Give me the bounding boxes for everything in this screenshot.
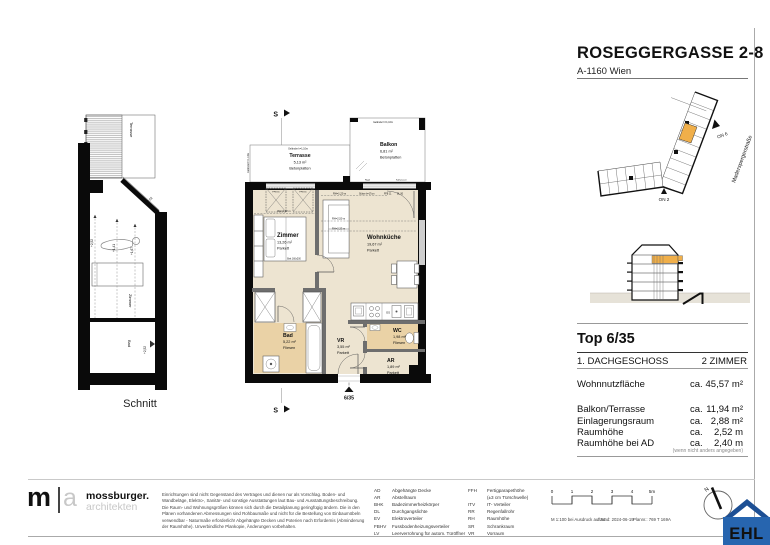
rigol-label: Rigol	[365, 180, 370, 182]
scale-tick-label: 0	[551, 489, 554, 494]
metric-label: Balkon/Terrasse	[577, 404, 645, 415]
section-roof-slope	[122, 180, 158, 213]
site-plan: ON 6 ON 2 Maderspergerstraße	[595, 88, 760, 223]
frame-bottom	[28, 536, 755, 537]
room-name: Balkon	[380, 142, 397, 148]
bed-size-label: Bett 160x200	[287, 258, 301, 261]
architect-logo-divider	[58, 487, 60, 513]
metric-value: 45,57 m²	[706, 379, 744, 390]
architect-logo-m: m	[27, 484, 51, 511]
legend-desc: IT- Verteiler	[487, 502, 511, 507]
legend-desc: (±3 cm Türschwelle)	[487, 495, 528, 500]
legend-abbr: RH	[468, 516, 475, 521]
toilet	[406, 333, 419, 344]
zimmer-wardrobe	[254, 215, 263, 277]
scale-bar: 0 1 2 3 4 5m	[548, 486, 660, 510]
metric-ca: ca.	[690, 379, 703, 390]
legend-desc: Fertigparapethöhe	[487, 488, 525, 493]
room-floor: Betonplatten	[289, 167, 310, 171]
legend-abbr: DL	[374, 509, 380, 514]
unit-floor-underline	[577, 368, 748, 369]
scale-bar-line	[552, 496, 652, 504]
column-label: Stütze b=17cm	[359, 192, 374, 195]
room-floor: Fliesen	[283, 346, 295, 350]
print-plan-number: Plannr.: 769 T 169A	[633, 517, 671, 522]
north-letter: N	[704, 486, 711, 493]
room-name: Zimmer	[277, 233, 299, 239]
railing-label-terrace-left: Geländer h=1,10m	[247, 153, 250, 173]
metric-ca: ca.	[690, 404, 703, 415]
scale-tick-label: 5m	[649, 489, 656, 494]
legend-abbr: FBHV	[374, 524, 386, 529]
section-marker-letter: S	[273, 408, 278, 415]
legend-abbr: VR	[468, 531, 474, 536]
legend-desc: Badezimmerheizkörper	[392, 502, 439, 507]
scale-tick-label: 4	[631, 489, 634, 494]
entry-threshold	[338, 374, 360, 383]
unit-floor: 1. DACHGESCHOSS	[577, 356, 668, 367]
railing-label-terrace: Geländer h=1,10m	[288, 148, 308, 151]
disclaimer-line: der Raumhöhe). Unverbindliche Plankopie,…	[162, 524, 364, 530]
legend-desc: Abstellraum	[392, 495, 416, 500]
architect-subtitle: architekten	[86, 501, 137, 513]
ffb-label: FFB 11	[384, 193, 392, 195]
floor-plan: FFB 31 FFB 31 Bett 160x200	[238, 105, 438, 415]
plan-sheet: ROSEGGERGASSE 2-8 A-1160 Wien	[0, 0, 770, 545]
room-floor: Parkett	[337, 351, 350, 355]
room-area: 19,67 m²	[367, 243, 383, 247]
ehl-logo: EHL	[723, 495, 770, 545]
disclaimer-line: Wandbeläge, Elektro-, Sanitär- und sonst…	[162, 498, 364, 504]
section-roof-slope-glass	[123, 177, 159, 210]
on6-marker-triangle	[712, 120, 720, 130]
on2-marker-triangle	[661, 188, 667, 194]
legend-abbr: BHK	[374, 502, 383, 507]
room-area: 6,81 m²	[380, 150, 394, 154]
legend-desc: Fussbodenheizungsverteiler	[392, 524, 449, 529]
ehl-roof-icon	[725, 499, 769, 517]
unit-heading: Top 6/35	[577, 331, 635, 347]
section-caption: Schnitt	[112, 398, 168, 410]
metric-label: Einlagerungsraum	[577, 416, 654, 427]
section-drawing: Terrasse +2,52 +1,41 +1,67 +2,52 +2,	[60, 108, 210, 408]
room-name: VR	[337, 338, 344, 344]
footer-separator	[28, 479, 755, 480]
page-address: A-1160 Wien	[577, 66, 631, 77]
room-area: 1,98 m²	[393, 335, 407, 339]
page-title: ROSEGGERGASSE 2-8	[577, 44, 764, 63]
legend-abbr: ITV	[468, 502, 475, 507]
unit-rooms-count: 2 ZIMMER	[702, 356, 747, 367]
legend-abbr: RR	[468, 509, 475, 514]
entry-number: 6/35	[344, 396, 354, 402]
room-area: 3,55 m²	[337, 345, 351, 349]
bathtub	[306, 323, 322, 373]
entry-marker: 6/35	[344, 383, 354, 402]
section-height-3: +1,67	[130, 247, 134, 255]
ehl-text: EHL	[729, 525, 764, 543]
disclaimer-line: Plänen vorhandenen Abmessungen sind Rohb…	[162, 511, 364, 517]
rh-zimmer-label: RH=2,02 m	[277, 209, 290, 213]
section-terrace-label: Terrasse	[129, 122, 134, 138]
rh-wk1-label: RH=1,20 m	[333, 191, 346, 195]
print-date: Stand: 2024-06-19	[598, 517, 634, 522]
on2-marker-label: ON 2	[659, 197, 670, 202]
section-marker-bottom: S	[273, 388, 290, 415]
metric-ca: ca.	[690, 416, 703, 427]
disclaimer-text: Einrichtungen sind nicht Gegenstand des …	[162, 492, 364, 530]
legend-desc: Leerverrohrung für autom. Türöffner	[392, 531, 465, 536]
skylight-label: FFB 31	[299, 192, 307, 194]
legend-abbr: SR	[468, 524, 474, 529]
architect-logo-a: a	[63, 486, 77, 511]
room-floor: Parkett	[277, 247, 290, 251]
building-section-diagram	[590, 230, 750, 320]
bed	[264, 217, 306, 261]
rh-wk3-label: RH=2,33 m	[332, 227, 345, 231]
room-name: Wohnküche	[367, 235, 402, 241]
dishwasher-label: GS	[386, 311, 390, 315]
dl-label: DL 90	[397, 193, 404, 195]
room-floor: Fliesen	[393, 341, 405, 345]
legend-desc: Schrankraum	[487, 524, 514, 529]
section-marker-top: S	[273, 110, 290, 146]
legend-desc: Vorraum	[487, 531, 504, 536]
info-top-line	[577, 323, 748, 324]
scale-tick-label: 2	[591, 489, 594, 494]
section-bed	[92, 263, 143, 286]
metric-ca: ca.	[690, 427, 703, 438]
metric-value: 2,52 m	[714, 427, 743, 438]
legend-abbr: FFH	[468, 488, 477, 493]
kaltwasser-label: Kaltwasser	[396, 179, 407, 182]
rh-wk2-label: RH=2,50 m	[332, 217, 345, 221]
room-area: 1,89 m²	[387, 365, 401, 369]
legend-abbr: AD	[374, 488, 380, 493]
legend-abbr: EV	[374, 516, 380, 521]
section-height-2: +1,41	[112, 244, 116, 252]
section-terrace-hatch	[86, 115, 122, 178]
section-bad-label: Bad	[127, 340, 132, 347]
legend-desc: Regenfallrohr	[487, 509, 515, 514]
metric-label: Wohnnutzfläche	[577, 379, 645, 390]
legend-desc: Durchgangslichte	[392, 509, 428, 514]
unit-heading-underline	[577, 352, 748, 353]
metric-value: 2,88 m²	[711, 416, 743, 427]
room-name: WC	[393, 328, 402, 334]
section-marker-letter: S	[273, 112, 278, 119]
room-floor: Parkett	[387, 371, 400, 375]
wc-sink	[370, 325, 380, 331]
kitchen-counter: GS	[351, 303, 418, 320]
highlighted-floor	[652, 256, 678, 263]
railing-label-balcony: Geländer h=1,10m	[373, 121, 393, 124]
building-outline	[632, 245, 678, 300]
room-area: 5,13 m²	[294, 161, 308, 165]
legend-desc: Elektroverteiler	[392, 516, 423, 521]
legend-abbr: AR	[374, 495, 380, 500]
room-floor: Betonplatten	[380, 156, 401, 160]
legend-desc: Abgehängte Decke	[392, 488, 431, 493]
room-name: Bad	[283, 333, 293, 339]
section-height-bad: +2,52	[143, 346, 147, 354]
unit-floor-row: 1. DACHGESCHOSS 2 ZIMMER	[577, 356, 747, 367]
section-zimmer-label: Zimmer	[128, 294, 133, 308]
metric-value: 11,94 m²	[706, 404, 743, 415]
room-floor: Parkett	[367, 249, 380, 253]
unit-note: (wenn nicht anders angegeben)	[577, 448, 743, 454]
scale-tick-label: 3	[611, 489, 614, 494]
legend-abbr: LV	[374, 531, 379, 536]
bad-sink	[284, 324, 296, 332]
room-area: 13,26 m²	[277, 241, 293, 245]
title-underline	[577, 78, 748, 79]
info-bottom-line	[577, 456, 748, 457]
site-plan-building	[598, 92, 718, 196]
street-label: Maderspergerstraße	[731, 135, 754, 184]
room-area: 5,22 m²	[283, 340, 297, 344]
washing-machine	[263, 356, 279, 372]
on6-marker-label: ON 6	[716, 131, 728, 140]
kitchen-appliance-2	[405, 306, 414, 318]
room-name: Terrasse	[289, 153, 310, 159]
metric-label: Raumhöhe	[577, 427, 623, 438]
highlighted-floor-step	[678, 256, 683, 261]
section-height-1: +2,52	[90, 239, 94, 247]
skylight-label: FFB 31	[272, 192, 280, 194]
scale-tick-label: 1	[571, 489, 574, 494]
legend-desc: Raumhöhe	[487, 516, 509, 521]
room-name: AR	[387, 358, 395, 364]
